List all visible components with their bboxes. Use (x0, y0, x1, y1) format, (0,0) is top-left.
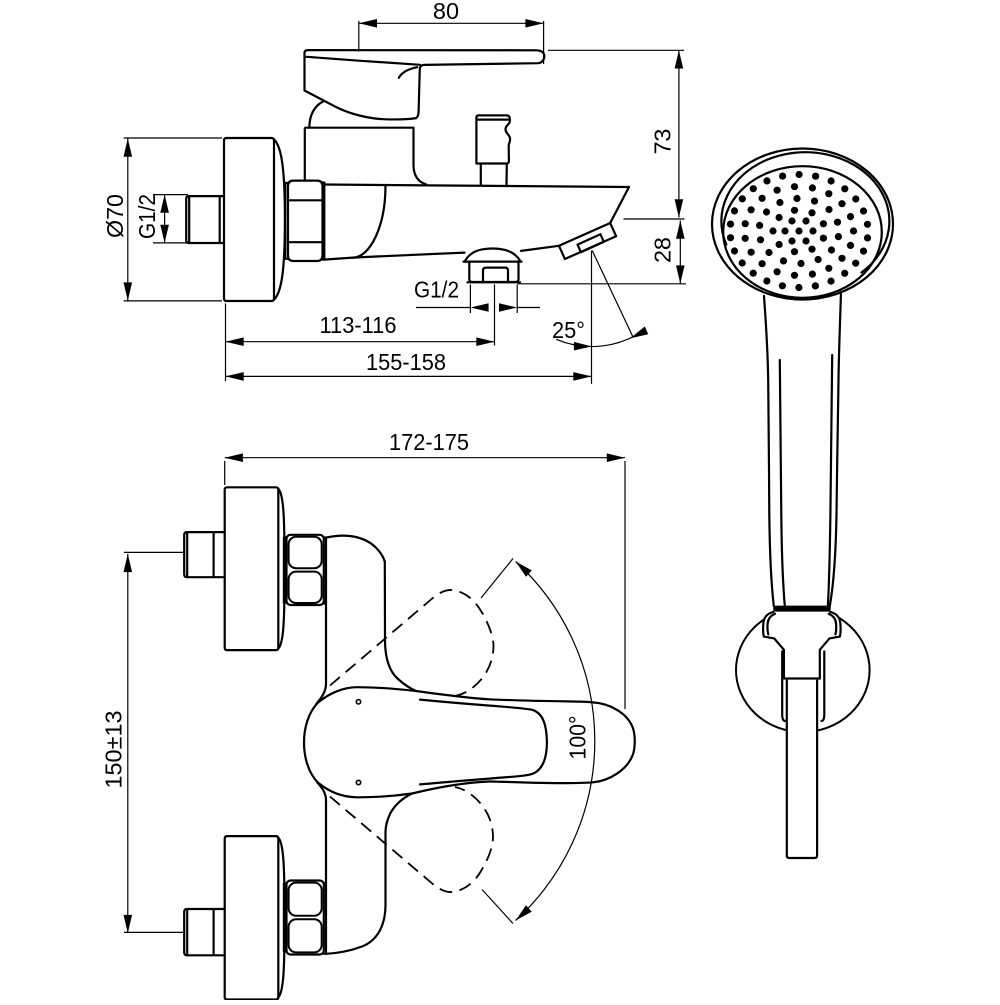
svg-text:G1/2: G1/2 (134, 194, 160, 239)
svg-text:73: 73 (650, 129, 676, 155)
svg-text:80: 80 (433, 0, 459, 24)
svg-text:28: 28 (650, 237, 676, 263)
svg-text:150±13: 150±13 (101, 711, 127, 789)
svg-text:113-116: 113-116 (320, 312, 397, 338)
svg-text:172-175: 172-175 (389, 429, 469, 455)
svg-text:100°: 100° (565, 716, 591, 760)
svg-text:Ø70: Ø70 (102, 194, 128, 238)
svg-text:155-158: 155-158 (366, 349, 446, 375)
svg-text:25°: 25° (552, 317, 585, 343)
svg-text:G1/2: G1/2 (414, 277, 459, 303)
